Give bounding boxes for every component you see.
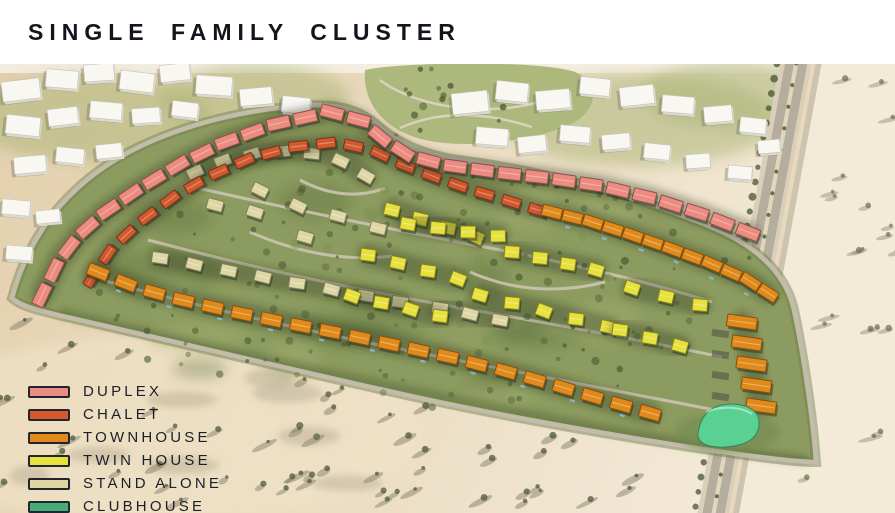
legend-label-duplex: DUPLEX xyxy=(83,383,162,400)
legend-swatch-clubhouse xyxy=(28,501,70,513)
legend-item-duplex: DUPLEX xyxy=(28,380,222,403)
legend-label-clubhouse: CLUBHOUSE xyxy=(83,498,205,513)
legend-item-stand-alone: STAND ALONE xyxy=(28,472,222,495)
legend-label-twin-house: TWIN HOUSE xyxy=(83,452,211,469)
masterplan-container: DUPLEX CHALET TOWNHOUSE TWIN HOUSE STAND… xyxy=(0,64,895,513)
header: SINGLE FAMILY CLUSTER xyxy=(0,0,895,64)
legend-swatch-stand-alone xyxy=(28,478,70,490)
legend-swatch-twin-house xyxy=(28,455,70,467)
legend-swatch-duplex xyxy=(28,386,70,398)
legend-swatch-townhouse xyxy=(28,432,70,444)
legend-label-townhouse: TOWNHOUSE xyxy=(83,429,211,446)
legend: DUPLEX CHALET TOWNHOUSE TWIN HOUSE STAND… xyxy=(28,380,222,513)
legend-item-chalet: CHALET xyxy=(28,403,222,426)
legend-item-clubhouse: CLUBHOUSE xyxy=(28,495,222,513)
legend-swatch-chalet xyxy=(28,409,70,421)
legend-item-townhouse: TOWNHOUSE xyxy=(28,426,222,449)
legend-label-stand-alone: STAND ALONE xyxy=(83,475,222,492)
page-title: SINGLE FAMILY CLUSTER xyxy=(28,19,461,46)
legend-label-chalet: CHALET xyxy=(83,406,161,423)
legend-item-twin-house: TWIN HOUSE xyxy=(28,449,222,472)
page: SINGLE FAMILY CLUSTER DUPLEX CHALET TOWN… xyxy=(0,0,895,513)
